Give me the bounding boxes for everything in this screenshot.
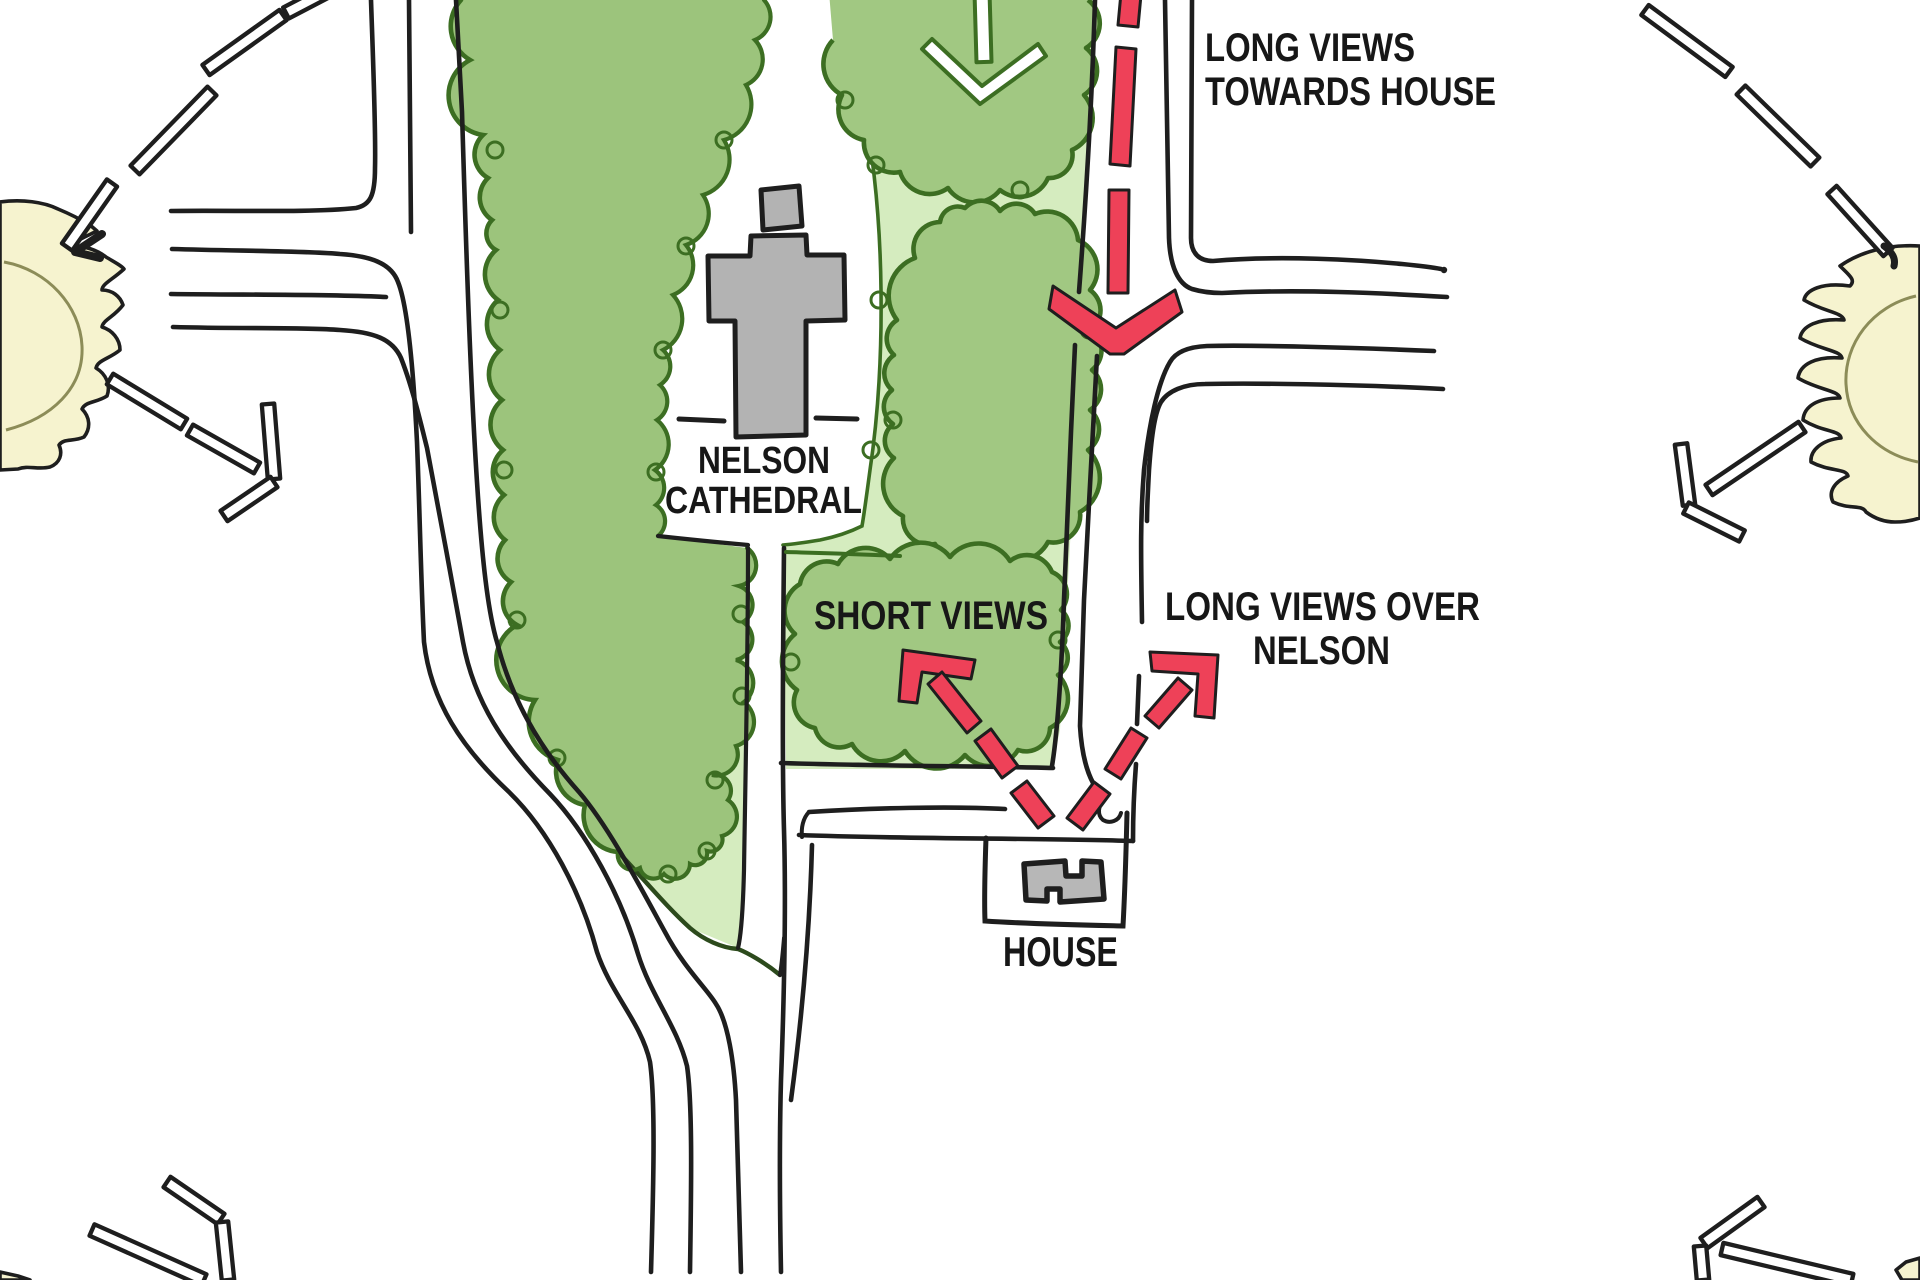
svg-text:HOUSE: HOUSE xyxy=(1003,928,1118,975)
svg-text:TOWARDS HOUSE: TOWARDS HOUSE xyxy=(1205,70,1496,114)
svg-text:SHORT VIEWS: SHORT VIEWS xyxy=(814,594,1048,638)
svg-text:LONG VIEWS: LONG VIEWS xyxy=(1205,26,1415,70)
svg-text:NELSON: NELSON xyxy=(698,440,830,482)
svg-text:CATHEDRAL: CATHEDRAL xyxy=(665,480,862,522)
svg-text:NELSON: NELSON xyxy=(1253,629,1390,673)
svg-text:LONG VIEWS OVER: LONG VIEWS OVER xyxy=(1165,585,1480,629)
